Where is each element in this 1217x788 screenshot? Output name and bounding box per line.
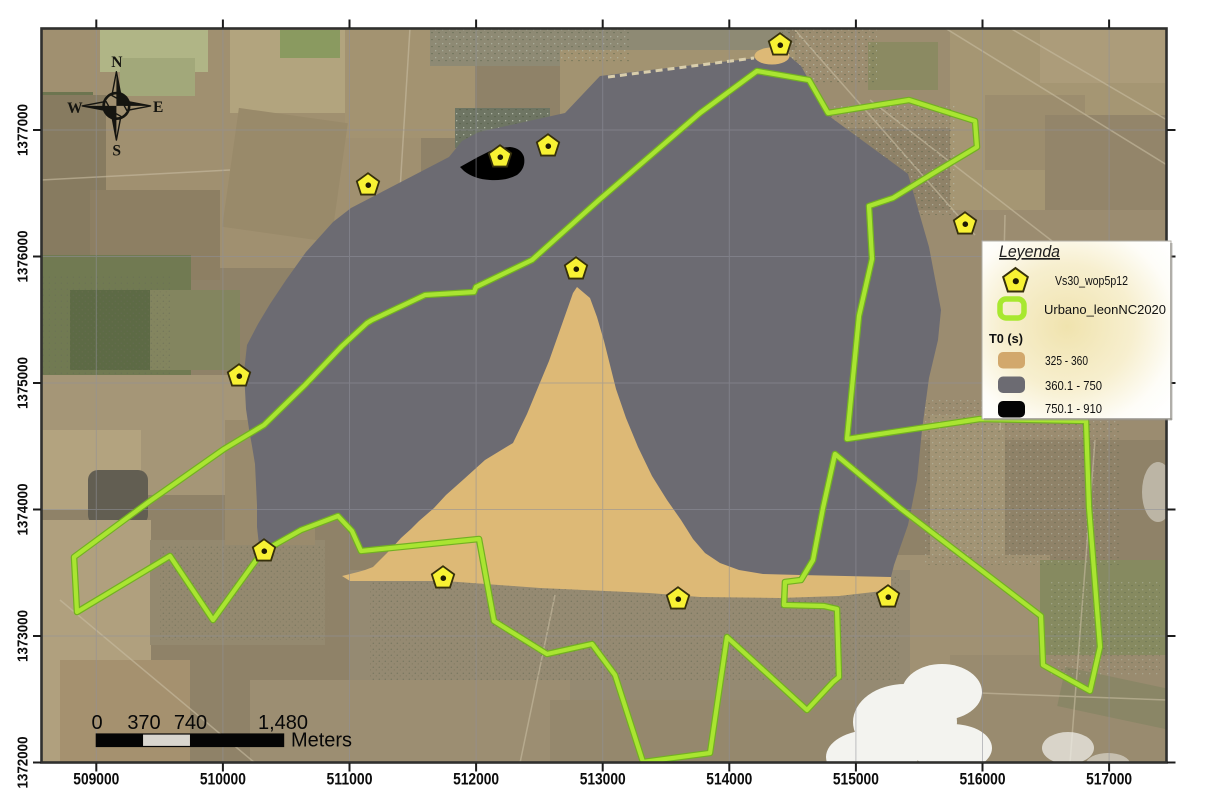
svg-text:Leyenda: Leyenda: [999, 243, 1060, 261]
svg-text:516000: 516000: [960, 770, 1006, 788]
svg-text:1372000: 1372000: [15, 737, 32, 788]
svg-text:370: 370: [127, 712, 160, 734]
svg-text:360.1 - 750: 360.1 - 750: [1045, 378, 1102, 393]
svg-text:1376000: 1376000: [15, 231, 32, 283]
svg-text:1374000: 1374000: [15, 484, 32, 536]
svg-text:1375000: 1375000: [15, 357, 32, 409]
svg-text:Meters: Meters: [291, 730, 352, 752]
svg-text:517000: 517000: [1086, 770, 1132, 788]
svg-text:750.1 - 910: 750.1 - 910: [1045, 401, 1102, 416]
svg-text:Urbano_leonNC2020: Urbano_leonNC2020: [1044, 302, 1166, 317]
svg-text:W: W: [67, 100, 83, 117]
svg-text:1373000: 1373000: [15, 610, 32, 662]
svg-text:740: 740: [174, 712, 207, 734]
svg-text:515000: 515000: [833, 770, 879, 788]
svg-text:513000: 513000: [580, 770, 626, 788]
svg-text:514000: 514000: [706, 770, 752, 788]
svg-text:Vs30_wop5p12: Vs30_wop5p12: [1055, 273, 1128, 288]
svg-text:511000: 511000: [327, 770, 373, 788]
svg-text:T0 (s): T0 (s): [989, 331, 1023, 346]
svg-text:S: S: [112, 142, 121, 159]
svg-text:0: 0: [91, 712, 102, 734]
svg-text:1377000: 1377000: [15, 104, 32, 156]
svg-text:509000: 509000: [73, 770, 119, 788]
svg-text:E: E: [153, 99, 163, 116]
svg-text:325 - 360: 325 - 360: [1045, 353, 1088, 368]
svg-text:N: N: [111, 54, 122, 71]
svg-text:512000: 512000: [453, 770, 499, 788]
svg-text:510000: 510000: [200, 770, 246, 788]
